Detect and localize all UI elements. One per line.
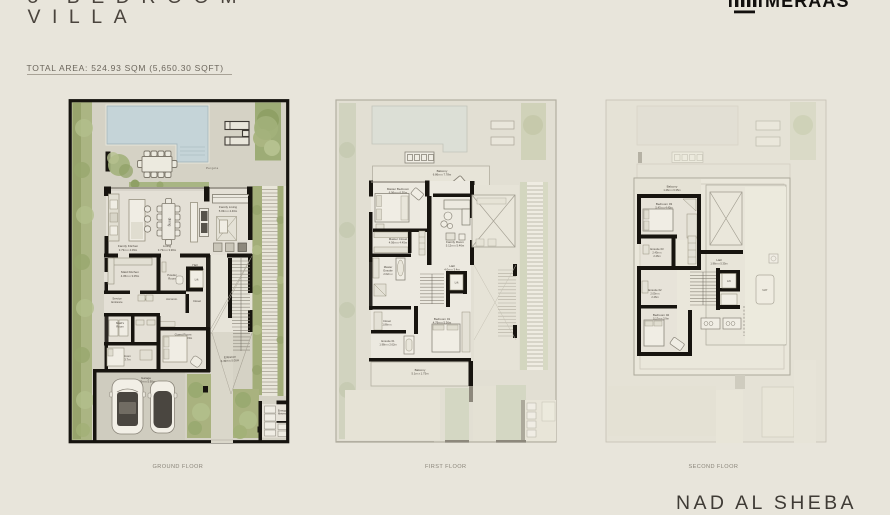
svg-text:5.1m x 1.75m: 5.1m x 1.75m bbox=[412, 372, 430, 376]
svg-text:Meters: Meters bbox=[278, 412, 287, 416]
svg-text:6.86m x 7.78m: 6.86m x 7.78m bbox=[433, 173, 452, 177]
svg-text:2.62m x: 2.62m x bbox=[383, 272, 393, 276]
svg-text:dining: dining bbox=[168, 218, 172, 227]
svg-text:Ensuite 03: Ensuite 03 bbox=[650, 247, 664, 251]
svg-text:Pergola: Pergola bbox=[206, 166, 218, 170]
svg-text:2.46m: 2.46m bbox=[651, 295, 658, 299]
svg-text:Hall: Hall bbox=[716, 258, 722, 262]
svg-text:Ensuite 02: Ensuite 02 bbox=[648, 288, 662, 292]
svg-text:1.96m x 5.35m: 1.96m x 5.35m bbox=[710, 262, 727, 266]
svg-text:Room: Room bbox=[168, 276, 176, 280]
svg-text:Bedroom 02: Bedroom 02 bbox=[653, 313, 670, 317]
svg-text:5.12m x 5.46m: 5.12m x 5.46m bbox=[446, 244, 465, 248]
svg-text:1.98m x 2.62m: 1.98m x 2.62m bbox=[379, 342, 396, 346]
svg-text:Accomm.: Accomm. bbox=[166, 297, 178, 301]
svg-text:MAT: MAT bbox=[762, 288, 768, 292]
svg-text:Balcony: Balcony bbox=[667, 185, 678, 189]
svg-text:Bedroom 03: Bedroom 03 bbox=[656, 202, 673, 206]
svg-text:Ensuite 01: Ensuite 01 bbox=[381, 339, 395, 343]
svg-text:1.26m x 6.35m: 1.26m x 6.35m bbox=[663, 188, 680, 192]
svg-text:Closet: Closet bbox=[193, 299, 201, 303]
svg-text:2.05m x: 2.05m x bbox=[650, 291, 660, 295]
svg-text:1.86m x: 1.86m x bbox=[382, 322, 392, 326]
svg-text:Closet: Closet bbox=[383, 319, 391, 323]
svg-text:4.56m x 4.45m: 4.56m x 4.45m bbox=[389, 241, 408, 245]
svg-text:Lift: Lift bbox=[195, 278, 199, 282]
svg-text:2.46m: 2.46m bbox=[653, 254, 660, 258]
svg-text:2.45m x: 2.45m x bbox=[652, 250, 662, 254]
svg-text:Ensuite: Ensuite bbox=[383, 268, 393, 272]
svg-text:3.73m x 4.09m: 3.73m x 4.09m bbox=[119, 248, 138, 252]
svg-text:Room: Room bbox=[116, 324, 124, 328]
svg-text:3.73m x 3.96m: 3.73m x 3.96m bbox=[158, 248, 177, 252]
svg-text:4.05m x 3.05m: 4.05m x 3.05m bbox=[121, 274, 140, 278]
svg-text:Lift: Lift bbox=[727, 279, 731, 283]
svg-text:Lift: Lift bbox=[455, 281, 459, 285]
svg-text:5.03m x 4.46m: 5.03m x 4.46m bbox=[219, 209, 238, 213]
svg-text:Entrance: Entrance bbox=[111, 300, 123, 304]
